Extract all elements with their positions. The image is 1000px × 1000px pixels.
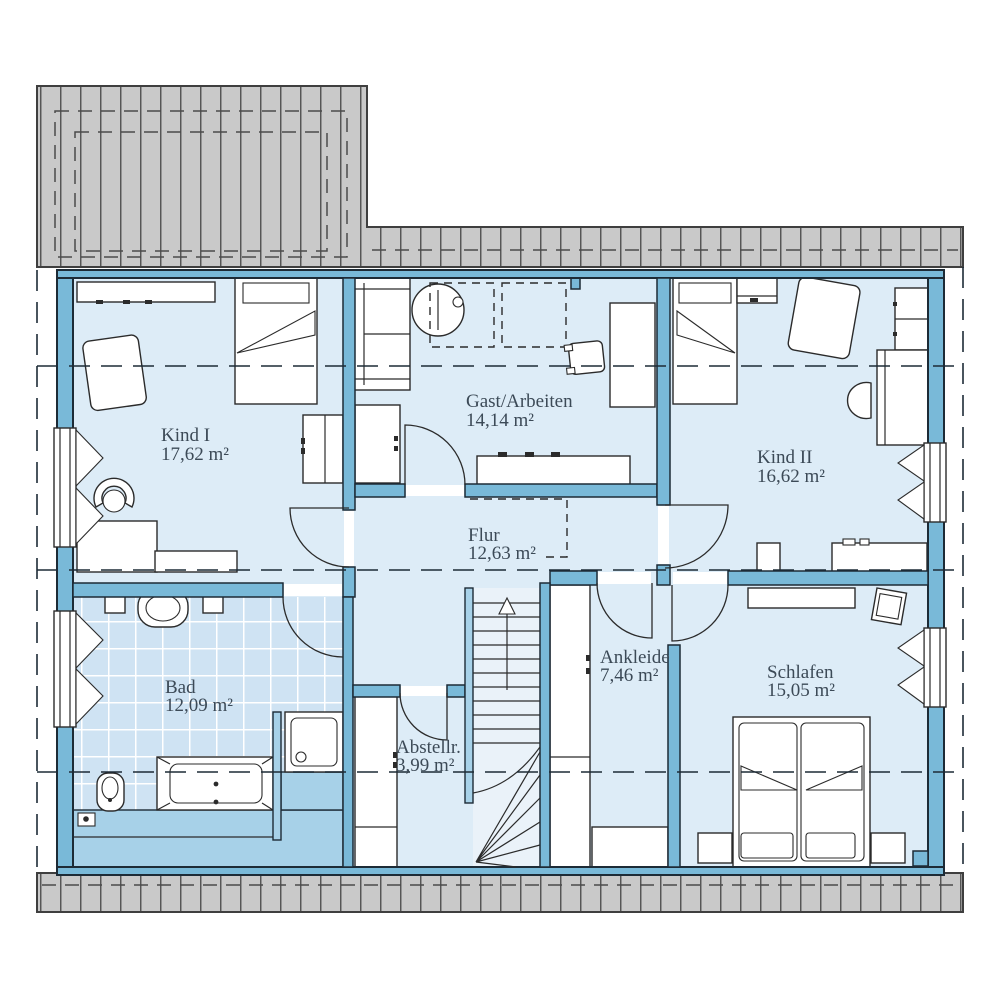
room-label-kind1-area: 17,62 m² bbox=[161, 444, 229, 465]
wall-gast-bottom-right bbox=[465, 484, 657, 497]
exterior-wall-right bbox=[928, 270, 944, 875]
room-label-bad-area: 12,09 m² bbox=[165, 695, 233, 716]
shelf-icon bbox=[893, 288, 928, 350]
bathtub-icon bbox=[157, 757, 273, 810]
roof-hatch-bottom bbox=[37, 873, 963, 912]
stair-wall-right bbox=[540, 583, 550, 867]
room-label-schlafen-area: 15,05 m² bbox=[767, 680, 835, 701]
wardrobe-icon bbox=[592, 827, 668, 867]
sofa-icon bbox=[353, 278, 410, 390]
desk-icon bbox=[877, 350, 928, 445]
wardrobe-icon bbox=[301, 415, 343, 483]
nightstand-icon bbox=[698, 833, 732, 863]
double-bed-icon bbox=[733, 717, 870, 867]
room-abstell-furniture bbox=[355, 694, 397, 867]
room-label-gast-name: Gast/Arbeiten bbox=[466, 391, 573, 412]
room-label-kind2-area: 16,62 m² bbox=[757, 466, 825, 487]
round-table-icon bbox=[412, 284, 464, 336]
room-label-ankleide-area: 7,46 m² bbox=[600, 665, 659, 686]
wardrobe-icon bbox=[355, 694, 397, 867]
sideboard-icon bbox=[748, 588, 855, 608]
side-table-icon bbox=[155, 551, 237, 572]
room-label-abstell-area: 3,99 m² bbox=[396, 755, 455, 776]
floorplan-canvas: Kind I 17,62 m² Gast/Arbeiten 14,14 m² K… bbox=[0, 0, 1000, 1000]
exterior-wall-top bbox=[57, 270, 944, 278]
bed-single-icon bbox=[673, 278, 737, 404]
wall-gast-bottom-left bbox=[355, 484, 405, 497]
chimney bbox=[913, 851, 928, 866]
rug-icon bbox=[82, 334, 147, 411]
wall-ankleide-right bbox=[668, 645, 680, 867]
bed-single-icon bbox=[235, 278, 317, 404]
wall-abstell-top-left bbox=[353, 685, 400, 697]
room-label-kind2-name: Kind II bbox=[757, 447, 812, 468]
rug-icon bbox=[787, 276, 861, 360]
shower-icon bbox=[285, 712, 343, 772]
shower-partition bbox=[273, 712, 281, 840]
room-label-gast-area: 14,14 m² bbox=[466, 410, 534, 431]
wall-kind1-right-upper bbox=[343, 278, 355, 510]
wall-kind1-right-lower bbox=[343, 567, 355, 597]
picture-frame-icon bbox=[871, 588, 906, 625]
shelf-icon bbox=[77, 282, 215, 302]
wardrobe-icon bbox=[550, 585, 590, 867]
room-label-flur-area: 12,63 m² bbox=[468, 543, 536, 564]
wall-bad-top bbox=[73, 583, 283, 597]
wardrobe-icon bbox=[355, 405, 400, 483]
wall-bad-right bbox=[343, 597, 353, 867]
desk-icon bbox=[610, 303, 655, 407]
wardrobe-icon bbox=[737, 278, 777, 303]
wall-ankleide-top bbox=[550, 571, 597, 585]
roof-hatch-top bbox=[37, 86, 963, 267]
room-label-kind1-name: Kind I bbox=[161, 425, 210, 446]
wall-schlafen-top bbox=[728, 571, 928, 585]
wall-kind2-left-upper bbox=[657, 278, 670, 505]
nightstand-icon bbox=[871, 833, 905, 863]
floorplan-svg: Kind I 17,62 m² Gast/Arbeiten 14,14 m² K… bbox=[0, 0, 1000, 1000]
stair-wall-left bbox=[465, 588, 473, 803]
exterior-wall-left bbox=[57, 270, 73, 875]
office-chair-icon bbox=[564, 340, 605, 375]
wall-abstell-top-right bbox=[447, 685, 465, 697]
exterior-wall-bottom bbox=[57, 867, 944, 875]
toilet-icon bbox=[97, 773, 124, 811]
sideboard-icon bbox=[477, 452, 630, 485]
wall-stub bbox=[571, 278, 580, 289]
